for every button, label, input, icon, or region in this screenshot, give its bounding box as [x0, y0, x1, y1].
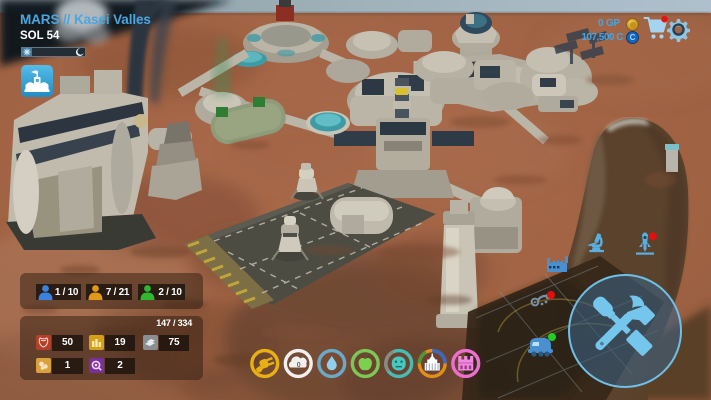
svg-text:0: 0 [297, 362, 301, 369]
